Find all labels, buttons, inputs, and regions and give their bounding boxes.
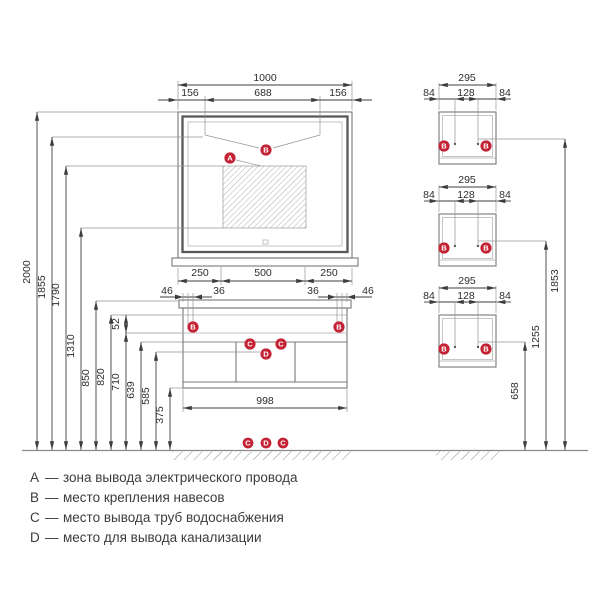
floor-hatch-left [172, 452, 352, 461]
marker-d-label: D [263, 439, 269, 448]
wall-cabinet-top: 295 84 128 84 [423, 72, 511, 164]
dim-295: 295 [458, 72, 476, 84]
floor [22, 451, 588, 461]
dim-1855: 1855 [36, 275, 48, 299]
legend-text: место вывода труб водоснабжения [63, 510, 284, 525]
floor-hatch-right [436, 452, 500, 461]
legend-row-d: D — место для вывода канализации [30, 530, 262, 545]
mirror-front-view [172, 96, 358, 266]
dim-500: 500 [254, 267, 272, 279]
dim-arrow [175, 295, 183, 300]
marker-b-cab3-left: B [438, 343, 449, 354]
mirror-top-dims: 1000 156 688 156 [158, 72, 372, 110]
legend-separator: — [45, 490, 59, 505]
dim-710: 710 [110, 373, 122, 391]
dim-156-right: 156 [329, 87, 347, 99]
legend-key: D [30, 530, 40, 545]
marker-b-label: B [263, 146, 269, 155]
dim-arrow [328, 295, 336, 300]
dim-295: 295 [458, 275, 476, 287]
marker-c-vanity-2: C [275, 338, 286, 349]
hole-dot [454, 346, 456, 348]
dim-84: 84 [423, 290, 435, 302]
dim-52: 52 [110, 318, 122, 330]
marker-b-cab3-right: B [480, 343, 491, 354]
marker-c-vanity-1: C [244, 338, 255, 349]
dim-658: 658 [509, 382, 521, 400]
dim-295: 295 [458, 174, 476, 186]
dim-arrow [194, 295, 202, 300]
marker-b-label: B [483, 345, 489, 354]
legend-key: B [30, 490, 39, 505]
marker-b-cab2-right: B [480, 242, 491, 253]
marker-b-mirror: B [260, 144, 271, 155]
mirror-bottom-ledge [172, 258, 358, 266]
marker-b-cab1-right: B [480, 140, 491, 151]
marker-a: A [224, 152, 235, 163]
legend-key: A [30, 470, 39, 485]
wall-cabinet-bottom: 295 84 128 84 [423, 275, 511, 367]
wall-cabinet-middle: 295 84 128 84 [423, 174, 511, 266]
legend-row-b: B — место крепления навесов [30, 490, 225, 505]
dim-128: 128 [457, 87, 475, 99]
vanity-front-view [179, 300, 351, 388]
marker-c-label: C [280, 439, 286, 448]
hole-dot [454, 143, 456, 145]
marker-b-vanity-right: B [333, 321, 344, 332]
hole-dot [454, 245, 456, 247]
dim-46-left: 46 [161, 285, 173, 297]
marker-c-floor-2: C [278, 438, 289, 449]
dim-639: 639 [125, 381, 137, 399]
legend-key: C [30, 510, 40, 525]
legend-row-a: A — зона вывода электрического провода [30, 470, 298, 485]
marker-c-label: C [245, 439, 251, 448]
marker-b-label: B [441, 244, 447, 253]
legend-separator: — [45, 470, 59, 485]
legend-text: место для вывода канализации [63, 530, 262, 545]
leader-line [273, 135, 320, 148]
marker-b-label: B [441, 142, 447, 151]
leader-line [236, 160, 261, 166]
legend: A — зона вывода электрического провода B… [30, 470, 298, 545]
marker-b-cab2-left: B [438, 242, 449, 253]
legend-text: зона вывода электрического провода [63, 470, 298, 485]
dim-46-right: 46 [362, 285, 374, 297]
dim-84: 84 [499, 189, 511, 201]
vanity-width-dim: 998 [183, 389, 347, 412]
dim-250-left: 250 [191, 267, 209, 279]
legend-text: место крепления навесов [63, 490, 225, 505]
dim-84: 84 [499, 87, 511, 99]
dim-850: 850 [80, 369, 92, 387]
dim-1310: 1310 [65, 334, 77, 358]
dim-1000: 1000 [253, 72, 277, 84]
dim-84: 84 [499, 290, 511, 302]
touch-sensor [263, 240, 268, 244]
dim-84: 84 [423, 87, 435, 99]
marker-c-label: C [247, 340, 253, 349]
marker-b-label: B [483, 244, 489, 253]
dim-36-right: 36 [307, 285, 319, 297]
marker-b-label: B [483, 142, 489, 151]
legend-separator: — [45, 510, 59, 525]
dim-1790: 1790 [50, 283, 62, 307]
dim-2000: 2000 [21, 260, 33, 284]
marker-b-label: B [190, 323, 196, 332]
drawing-canvas: 1000 156 688 156 250 500 250 [0, 0, 600, 600]
marker-b-vanity-left: B [187, 321, 198, 332]
dim-156-left: 156 [181, 87, 199, 99]
dim-250-right: 250 [320, 267, 338, 279]
installation-drawing: 1000 156 688 156 250 500 250 [0, 0, 600, 600]
vanity-hanger-dims: 46 36 36 46 [160, 285, 374, 325]
dim-36-left: 36 [213, 285, 225, 297]
dim-128: 128 [457, 189, 475, 201]
right-height-dims: 1853 1255 658 [478, 139, 565, 450]
leader-line [205, 135, 259, 148]
dim-585: 585 [140, 387, 152, 405]
dim-84: 84 [423, 189, 435, 201]
mirror-bottom-dims: 250 500 250 [178, 267, 352, 285]
hole-dot [477, 143, 479, 145]
legend-separator: — [45, 530, 59, 545]
dim-688: 688 [254, 87, 272, 99]
vanity-body [183, 308, 347, 388]
dim-128: 128 [457, 290, 475, 302]
dim-1853: 1853 [549, 269, 561, 293]
marker-a-label: A [227, 154, 233, 163]
hole-dot [477, 346, 479, 348]
dim-998: 998 [256, 395, 274, 407]
marker-d-floor: D [261, 438, 272, 449]
marker-b-label: B [336, 323, 342, 332]
vanity-countertop [179, 300, 351, 308]
legend-row-c: C — место вывода труб водоснабжения [30, 510, 284, 525]
marker-d-vanity: D [260, 348, 271, 359]
marker-b-cab1-left: B [438, 140, 449, 151]
marker-c-floor-1: C [243, 438, 254, 449]
dim-375: 375 [154, 406, 166, 424]
dim-820: 820 [95, 368, 107, 386]
electrical-zone-hatch [223, 166, 306, 228]
marker-c-label: C [278, 340, 284, 349]
dim-arrow [347, 295, 355, 300]
hole-dot [477, 245, 479, 247]
dim-1255: 1255 [530, 325, 542, 349]
marker-b-label: B [441, 345, 447, 354]
marker-d-label: D [263, 350, 269, 359]
